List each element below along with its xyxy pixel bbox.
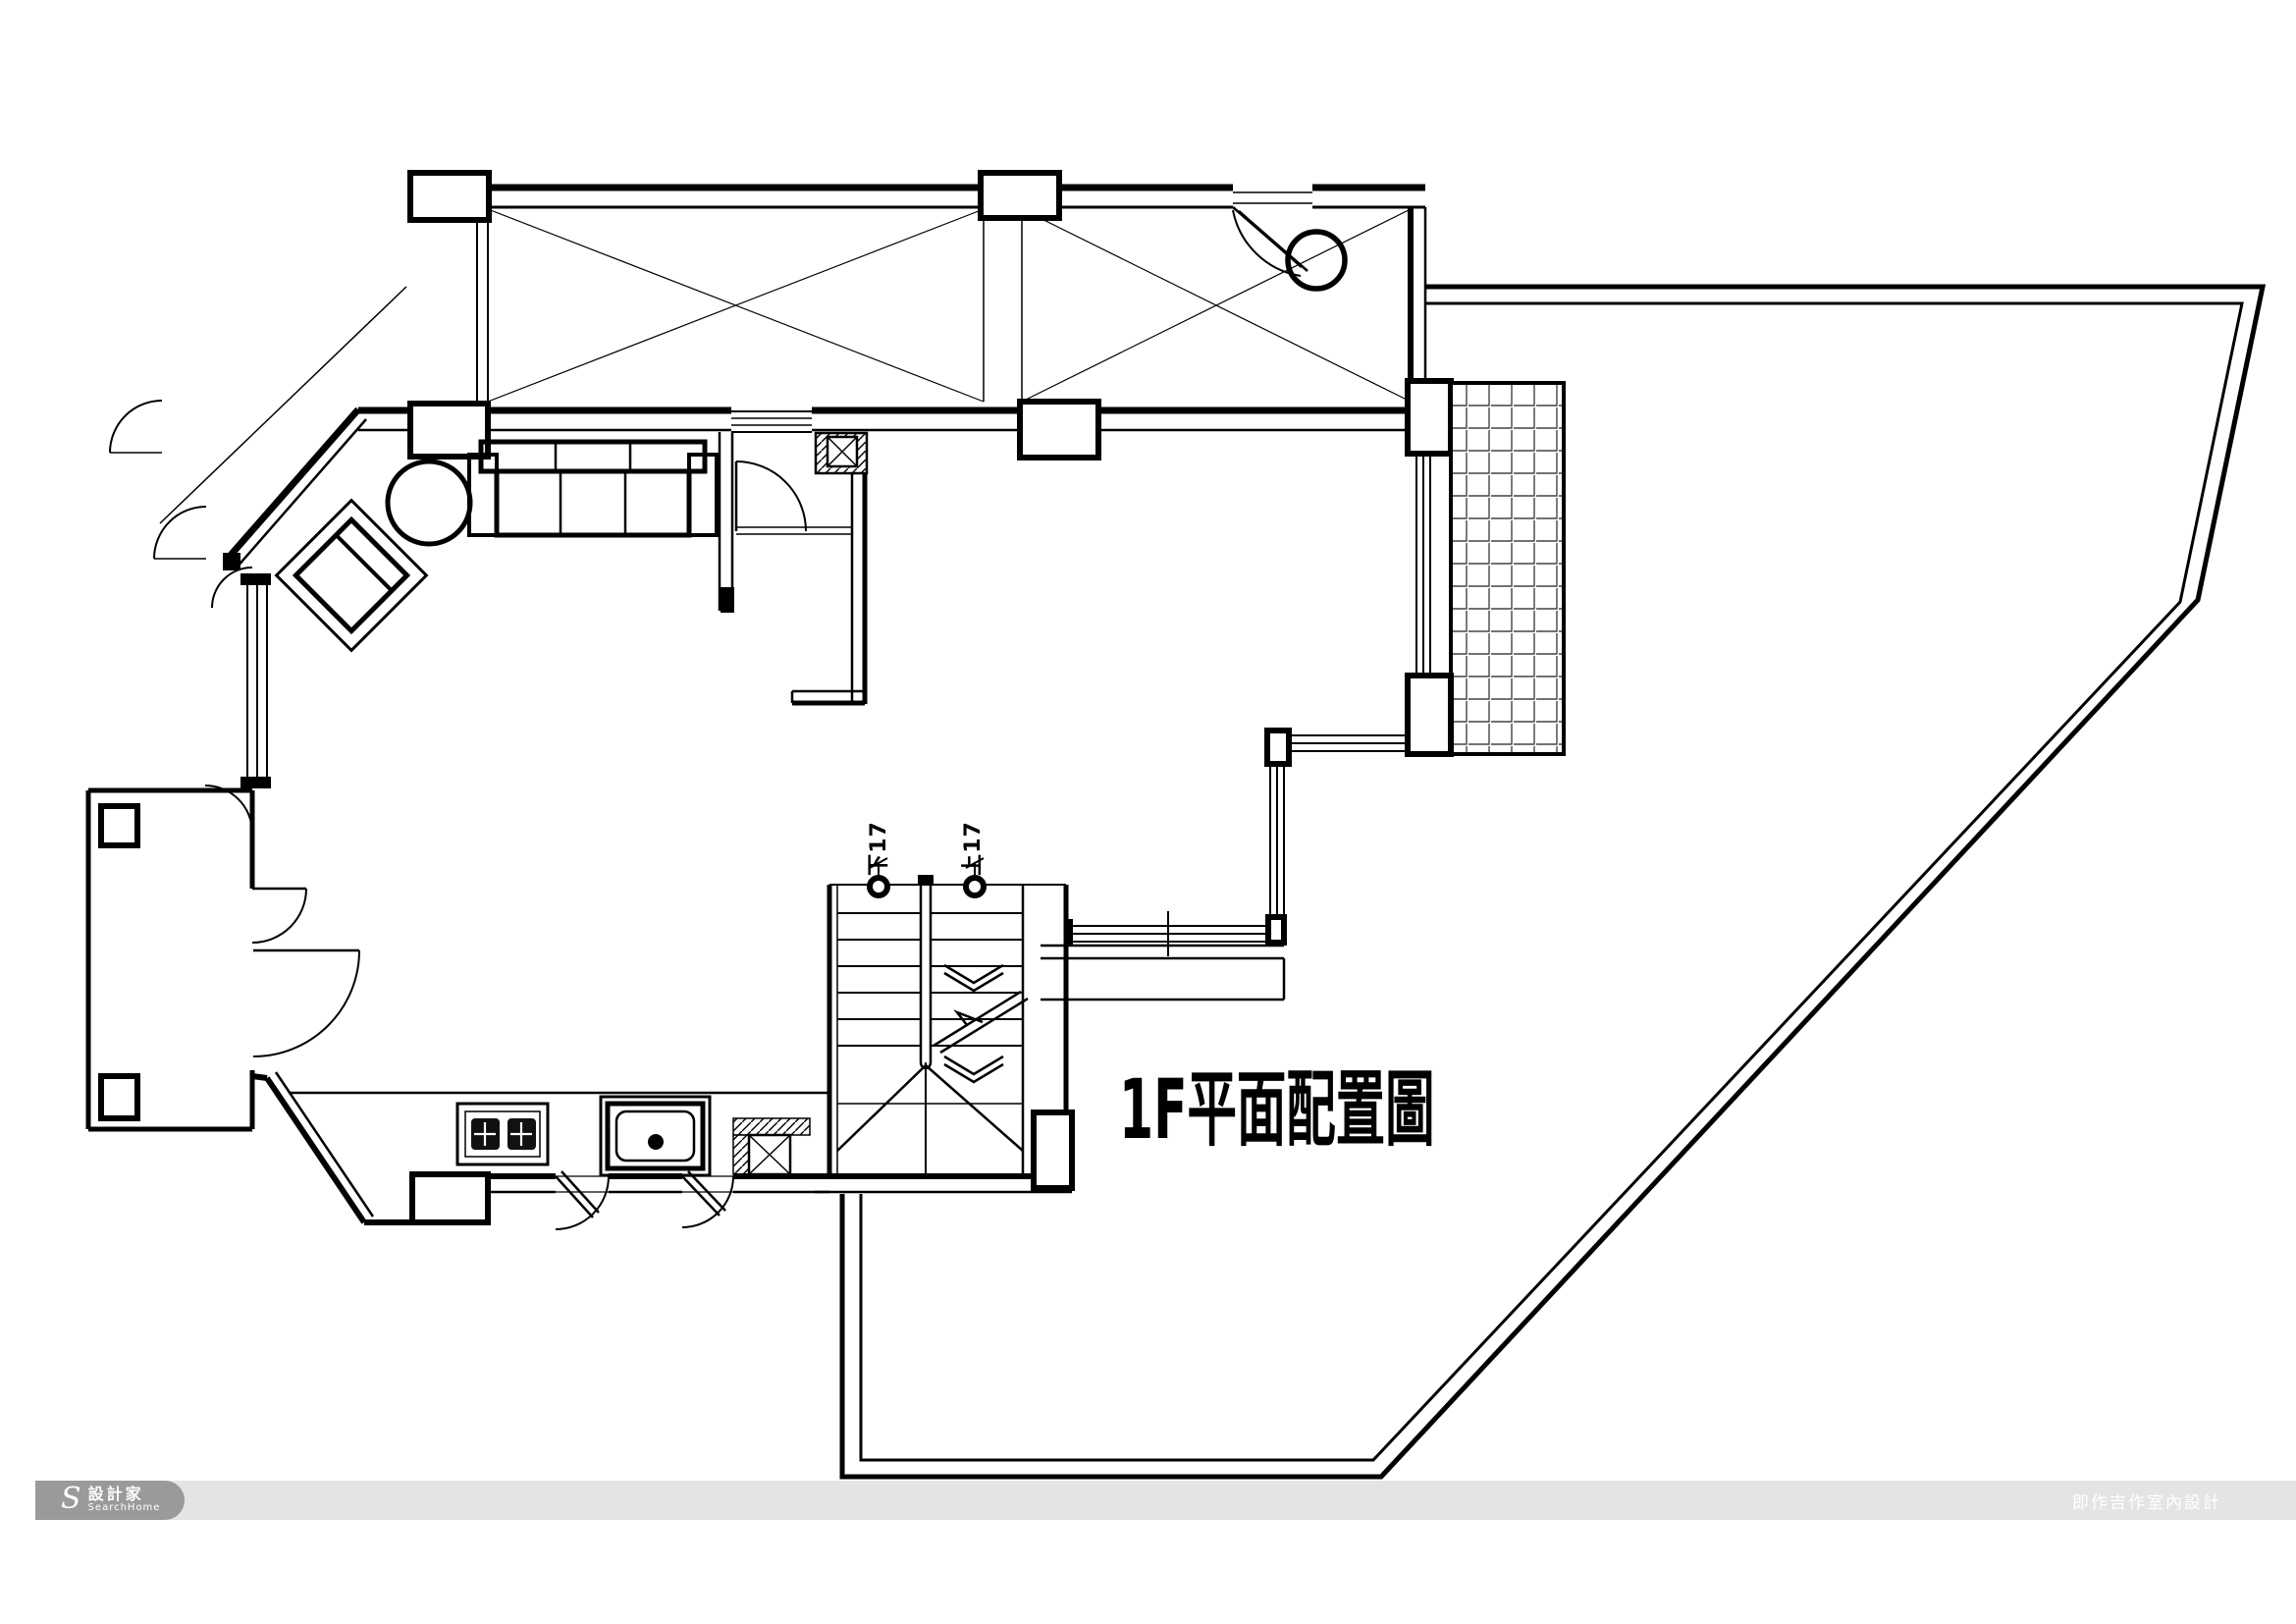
- footer-bar: [35, 1481, 2296, 1520]
- stair-up-label: 上17: [958, 801, 984, 895]
- designer-credit: 即作吉作室內設計: [2072, 1481, 2221, 1520]
- porch-post: [101, 806, 137, 845]
- window: [247, 585, 267, 778]
- brand-name-en: SearchHome: [88, 1503, 161, 1514]
- se-windows: [1041, 731, 1408, 1000]
- searchhome-logo: S 設計家 SearchHome: [35, 1481, 185, 1520]
- furniture: [277, 442, 717, 650]
- sink: [601, 1097, 710, 1175]
- stove: [457, 1104, 548, 1164]
- west-walls-and-porch: [88, 287, 406, 1129]
- floor-plan-page: 1F平面配置圖 下17 上17 S 設計家 SearchHome 即作吉作室內設…: [0, 0, 2296, 1624]
- round-table: [388, 461, 470, 544]
- column: [1408, 676, 1451, 754]
- column: [981, 173, 1059, 218]
- column: [1020, 402, 1098, 458]
- porch-post: [101, 1076, 137, 1118]
- brand-text: 設計家 SearchHome: [88, 1487, 161, 1513]
- floor-plan-drawing: [0, 0, 2296, 1624]
- kitchen: [252, 1072, 829, 1229]
- armchair: [277, 501, 427, 651]
- plan-title: 1F平面配置圖: [1119, 1066, 1435, 1153]
- brand-name-cn: 設計家: [88, 1487, 161, 1503]
- sofa: [469, 442, 717, 535]
- window: [1416, 454, 1430, 676]
- interior-partitions: [720, 432, 867, 704]
- stair-down-label: 下17: [864, 801, 889, 895]
- staircase: [815, 858, 1072, 1192]
- deck-pergola: [358, 173, 1451, 458]
- column: [410, 404, 488, 457]
- brand-s-icon: S: [61, 1485, 81, 1514]
- column: [410, 173, 489, 220]
- column: [1408, 381, 1451, 454]
